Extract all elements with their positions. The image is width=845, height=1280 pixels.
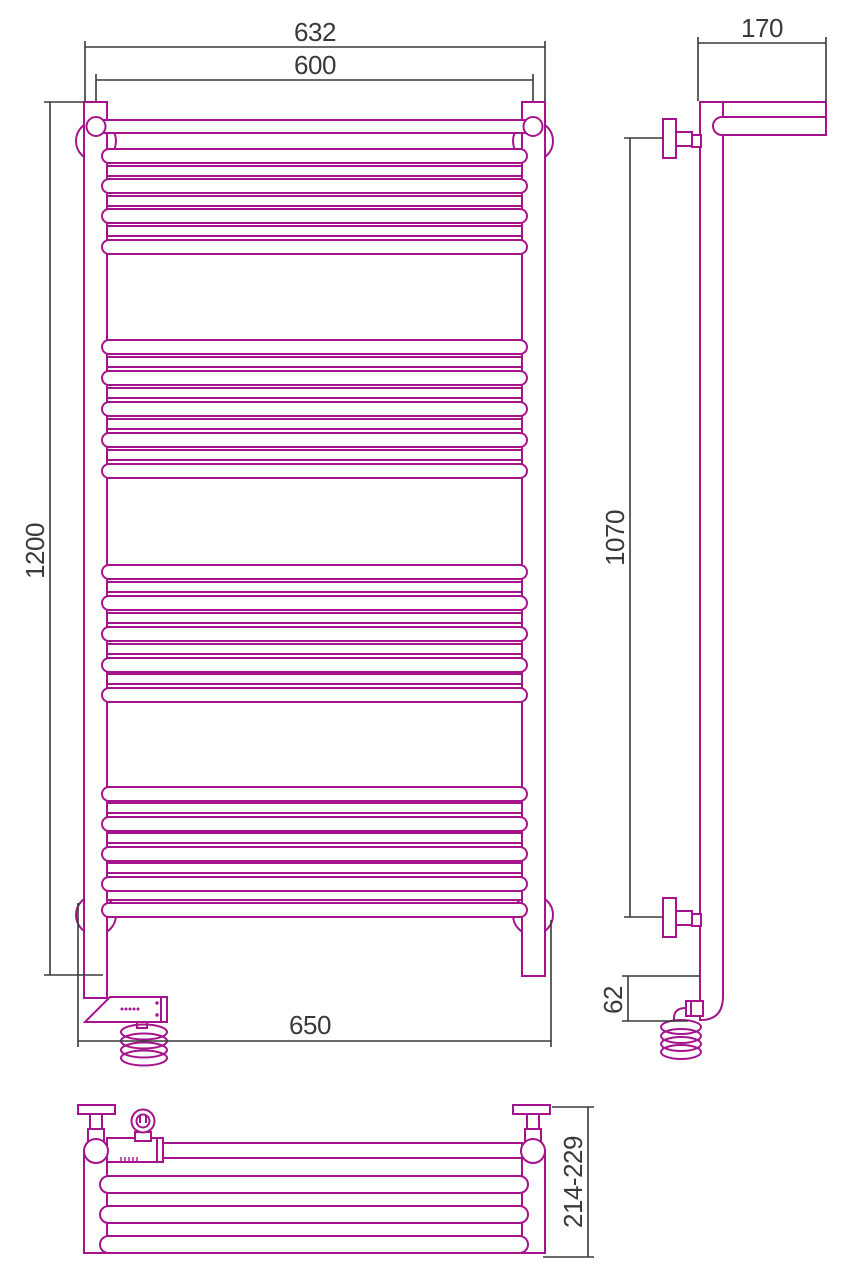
- rail: [107, 196, 522, 206]
- rail: [107, 613, 522, 623]
- power-cord-coil: [121, 1025, 167, 1066]
- dim-height: 1200: [20, 523, 50, 579]
- screw-dot: [155, 1013, 158, 1016]
- rail: [107, 644, 522, 654]
- rail: [107, 833, 522, 843]
- bracket-plate: [513, 1105, 550, 1114]
- plan-bracket-left: [78, 1105, 115, 1141]
- side-view: [661, 102, 826, 1059]
- dim-bracket-span: 1070: [600, 510, 630, 566]
- rail: [107, 419, 522, 429]
- dim-bottom-offset: 62: [598, 986, 628, 1014]
- rail: [102, 464, 527, 478]
- rail: [107, 674, 522, 684]
- bottom-view: [78, 1105, 550, 1253]
- side-shelf-arm: [723, 102, 826, 117]
- rails-front: [102, 149, 527, 917]
- dim-center-width: 600: [294, 50, 336, 80]
- electric-box: [85, 997, 167, 1028]
- rail: [102, 817, 527, 831]
- side-power-cord-coil: [661, 1020, 701, 1059]
- pivot-left: [87, 117, 106, 136]
- plan-cable-gland: [132, 1110, 155, 1142]
- dim-depth-top: 170: [741, 13, 783, 43]
- plan-pivot-left: [84, 1139, 108, 1163]
- rail: [107, 166, 522, 176]
- rail: [102, 627, 527, 641]
- rail: [100, 1206, 528, 1223]
- rail: [102, 340, 527, 354]
- plan-bracket-right: [513, 1105, 550, 1141]
- drawing-canvas: 632 600 1200 650 170 1070 62 214-229: [0, 0, 845, 1280]
- front-view: [76, 102, 553, 1066]
- dim-overall-width: 632: [294, 17, 336, 47]
- rail: [102, 179, 527, 193]
- dim-wall-depth-range: 214-229: [558, 1136, 588, 1228]
- rail: [100, 1176, 528, 1193]
- plan-pivot-right: [521, 1139, 545, 1163]
- bracket-collar: [692, 914, 701, 926]
- bracket-plate: [663, 119, 676, 158]
- plan-rails: [100, 1176, 528, 1253]
- rail: [102, 847, 527, 861]
- plan-shelf-bar: [108, 1143, 522, 1158]
- side-post: [700, 102, 723, 1020]
- screw-dot: [155, 1001, 158, 1004]
- rail: [102, 433, 527, 447]
- dim-bottom-width: 650: [289, 1010, 331, 1040]
- bracket-stem: [676, 911, 692, 925]
- rail: [102, 658, 527, 672]
- rail: [102, 688, 527, 702]
- rail: [102, 209, 527, 223]
- side-top-rail: [713, 117, 826, 135]
- rail: [107, 803, 522, 813]
- wall-bracket-top: [663, 119, 701, 158]
- cable-connector: [686, 1001, 703, 1016]
- shelf-bar: [96, 120, 533, 133]
- wall-bracket-bottom: [663, 898, 701, 937]
- rail: [102, 877, 527, 891]
- bracket-stem: [676, 132, 692, 146]
- rail: [107, 863, 522, 873]
- rail: [102, 371, 527, 385]
- rail: [107, 388, 522, 398]
- rail: [100, 1236, 528, 1253]
- pivot-right: [524, 117, 543, 136]
- rail: [102, 402, 527, 416]
- rail: [107, 582, 522, 592]
- side-cable-outlet: [674, 1001, 703, 1022]
- rail: [107, 450, 522, 460]
- post-left: [84, 102, 107, 998]
- bracket-stem: [527, 1114, 539, 1130]
- rail: [102, 787, 527, 801]
- rail: [102, 596, 527, 610]
- bracket-plate: [663, 898, 676, 937]
- rail: [102, 149, 527, 163]
- rail: [102, 903, 527, 917]
- rail: [102, 240, 527, 254]
- dim-line-depth-top: [698, 37, 826, 101]
- bracket-collar: [692, 135, 701, 147]
- rail: [107, 226, 522, 236]
- bracket-stem: [90, 1114, 102, 1130]
- rail: [102, 565, 527, 579]
- post-right: [522, 102, 545, 976]
- bracket-plate: [78, 1105, 115, 1114]
- rail: [107, 357, 522, 367]
- gland-outer: [132, 1110, 155, 1133]
- technical-drawing: 632 600 1200 650 170 1070 62 214-229: [0, 0, 845, 1280]
